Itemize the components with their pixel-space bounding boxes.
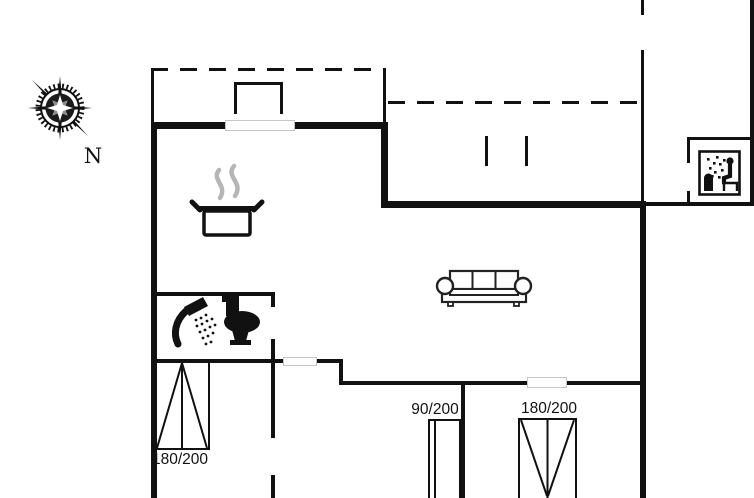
hall-door-opening [283, 357, 317, 366]
bed-size-label-right: 180/200 [520, 400, 578, 418]
sauna-icon [698, 150, 741, 196]
bedroom-west-wall-stub [271, 475, 275, 498]
steaming-pot-icon [188, 163, 266, 241]
carport-east-wall [383, 69, 386, 123]
compass-north-label: N [80, 144, 106, 168]
east-outer-wall [640, 201, 646, 498]
entrance-jamb-mark-left [485, 136, 488, 166]
bedroom-window [527, 377, 567, 388]
entrance-jamb-mark-right [525, 136, 528, 166]
sofa-icon [435, 268, 533, 308]
kitchen-window [225, 120, 295, 131]
floor-plan: 180/200 90/200 180/200 N [0, 0, 754, 498]
bathroom-east-wall-upper [271, 292, 275, 307]
sauna-north-wall [687, 137, 754, 140]
chimney-box [234, 82, 283, 114]
shower-icon [170, 296, 220, 350]
bedrooms-north-wall [339, 381, 642, 385]
sauna-west-wall-lower [687, 191, 690, 206]
bed-size-label-middle: 90/200 [408, 401, 462, 419]
double-bed-left [154, 361, 210, 450]
kitchen-east-wall [381, 122, 388, 208]
terrace-south-wall [381, 201, 646, 208]
bedroom-divider-wall [461, 381, 465, 498]
single-bed-middle [428, 419, 461, 498]
dashed-roof-line-west [151, 68, 386, 71]
toilet-icon [218, 294, 262, 348]
double-bed-right [518, 418, 577, 498]
compass-rose-icon [24, 72, 96, 144]
terrace-east-wall-upper [641, 0, 644, 15]
bed-size-label-left: 180/200 [149, 451, 211, 469]
sauna-west-wall-upper [687, 137, 690, 163]
bathroom-east-wall-lower [271, 339, 275, 438]
annex-south-wall [646, 202, 754, 206]
dashed-roof-line-east [388, 101, 641, 104]
annex-east-outer-wall [750, 0, 754, 206]
terrace-east-wall [641, 50, 644, 202]
carport-west-wall [151, 69, 154, 123]
